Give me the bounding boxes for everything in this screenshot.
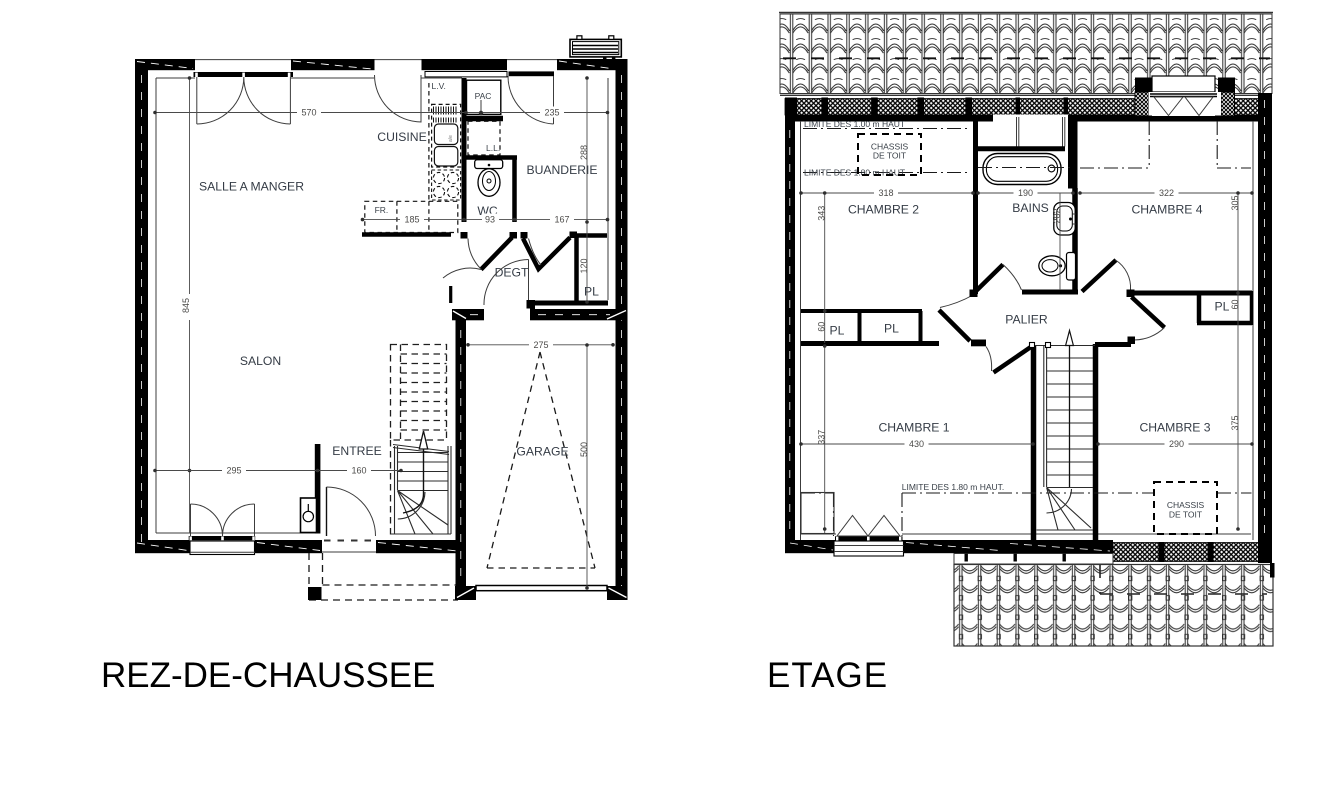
- svg-text:CHAMBRE 3: CHAMBRE 3: [1139, 421, 1210, 435]
- svg-text:CUISINE: CUISINE: [377, 130, 426, 144]
- svg-text:185: 185: [404, 215, 419, 225]
- svg-text:CHAMBRE 1: CHAMBRE 1: [878, 421, 949, 435]
- svg-text:337: 337: [817, 430, 827, 445]
- svg-text:93: 93: [485, 215, 495, 225]
- svg-text:LIMITE DES 1.00 m HAUT: LIMITE DES 1.00 m HAUT: [804, 119, 905, 129]
- svg-text:322: 322: [1159, 188, 1174, 198]
- svg-text:PL: PL: [884, 322, 899, 336]
- svg-text:845: 845: [181, 298, 191, 313]
- svg-text:SALON: SALON: [240, 354, 281, 368]
- svg-text:a/e: a/e: [448, 135, 454, 142]
- svg-text:DE TOIT: DE TOIT: [873, 151, 906, 161]
- svg-text:202: 202: [1052, 208, 1062, 223]
- svg-text:375: 375: [1230, 415, 1240, 430]
- svg-text:570: 570: [301, 108, 316, 118]
- svg-text:ENTREE: ENTREE: [332, 444, 381, 458]
- svg-text:60: 60: [1230, 299, 1240, 309]
- svg-text:343: 343: [817, 206, 827, 221]
- svg-text:235: 235: [544, 108, 559, 118]
- svg-text:430: 430: [909, 439, 924, 449]
- svg-text:L.V.: L.V.: [432, 81, 446, 91]
- svg-text:288: 288: [579, 145, 589, 160]
- svg-text:275: 275: [533, 340, 548, 350]
- svg-text:ETAGE: ETAGE: [767, 656, 888, 695]
- svg-text:FR.: FR.: [375, 205, 389, 215]
- svg-text:120: 120: [579, 258, 589, 273]
- svg-text:167: 167: [554, 215, 569, 225]
- svg-text:305: 305: [1230, 195, 1240, 210]
- svg-text:LIMITE DES 1.80 m HAUT.: LIMITE DES 1.80 m HAUT.: [902, 482, 1005, 492]
- svg-text:CHASSIS: CHASSIS: [1167, 500, 1205, 510]
- svg-text:BAINS: BAINS: [1012, 201, 1049, 215]
- svg-text:500: 500: [579, 442, 589, 457]
- svg-text:PL: PL: [1215, 300, 1230, 314]
- svg-text:290: 290: [1169, 439, 1184, 449]
- svg-text:DEGT: DEGT: [495, 266, 529, 280]
- svg-text:60: 60: [817, 322, 827, 332]
- svg-text:190: 190: [1018, 188, 1033, 198]
- svg-text:SALLE A MANGER: SALLE A MANGER: [199, 180, 304, 194]
- svg-text:CHAMBRE 2: CHAMBRE 2: [848, 203, 919, 217]
- svg-text:295: 295: [226, 466, 241, 476]
- svg-text:REZ-DE-CHAUSSEE: REZ-DE-CHAUSSEE: [101, 656, 435, 695]
- svg-text:318: 318: [878, 188, 893, 198]
- svg-text:PL: PL: [830, 324, 845, 338]
- svg-text:GARAGE: GARAGE: [516, 445, 568, 459]
- svg-text:160: 160: [351, 466, 366, 476]
- svg-text:PAC: PAC: [475, 91, 492, 101]
- svg-text:PALIER: PALIER: [1005, 313, 1048, 327]
- svg-text:PL: PL: [584, 285, 599, 299]
- svg-text:DE TOIT: DE TOIT: [1169, 510, 1202, 520]
- svg-text:L.L.: L.L.: [486, 143, 500, 153]
- svg-text:CHAMBRE 4: CHAMBRE 4: [1131, 203, 1202, 217]
